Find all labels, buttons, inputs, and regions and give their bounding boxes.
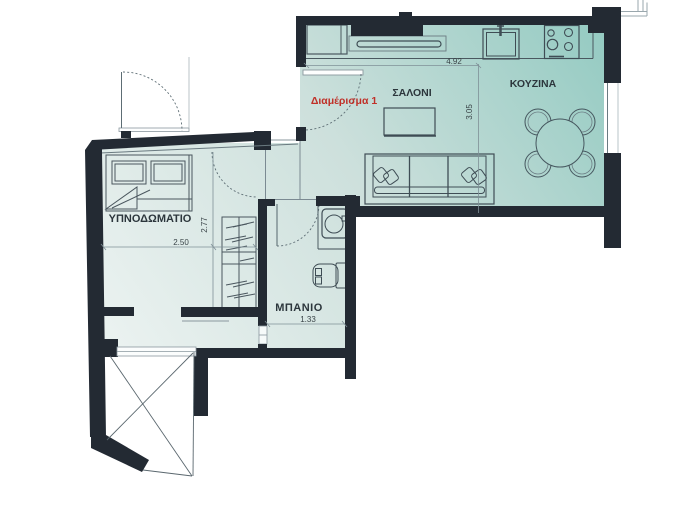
svg-text:4.92: 4.92 xyxy=(446,57,462,66)
svg-text:ΥΠΝΟΔΩΜΑΤΙΟ: ΥΠΝΟΔΩΜΑΤΙΟ xyxy=(109,213,192,225)
svg-text:2.50: 2.50 xyxy=(173,238,189,247)
svg-text:ΣΑΛΟΝΙ: ΣΑΛΟΝΙ xyxy=(392,87,431,99)
svg-text:ΜΠΑΝΙΟ: ΜΠΑΝΙΟ xyxy=(275,302,323,314)
svg-text:2.77: 2.77 xyxy=(200,217,209,233)
svg-text:Διαμέρισμα 1: Διαμέρισμα 1 xyxy=(311,95,377,107)
svg-text:1.33: 1.33 xyxy=(300,315,316,324)
svg-text:ΚΟΥΖΙΝΑ: ΚΟΥΖΙΝΑ xyxy=(510,78,557,90)
svg-text:3.05: 3.05 xyxy=(465,104,474,120)
